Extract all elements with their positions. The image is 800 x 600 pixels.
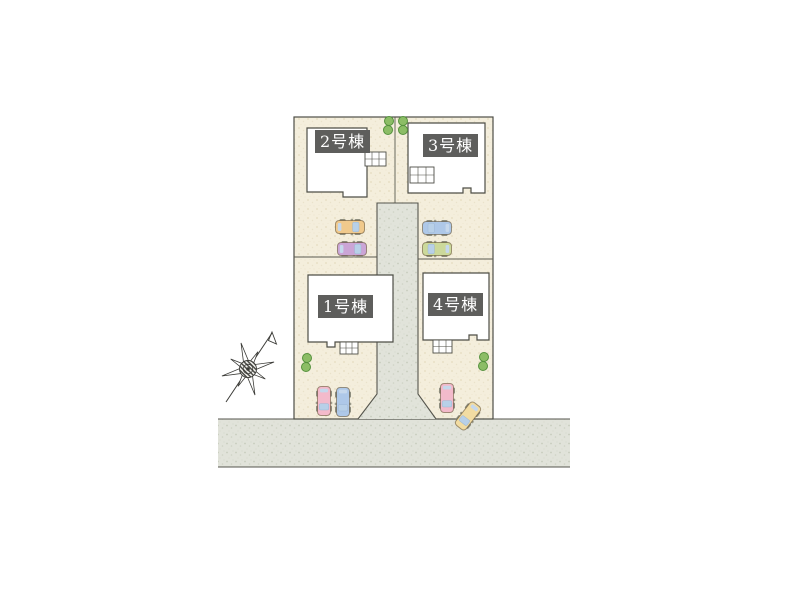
front-road: [218, 419, 570, 467]
site-plan-drawing: [0, 0, 800, 600]
car-blue-lot3: [423, 220, 452, 237]
porch-grid-building-3: [410, 167, 434, 183]
porch-grid-building-1: [340, 342, 358, 354]
label-building-1: 1号棟: [318, 295, 373, 318]
car-pink-lot4: [439, 384, 456, 413]
car-green-lot3: [423, 241, 452, 258]
car-pink-lot1: [316, 387, 333, 416]
label-building-2: 2号棟: [315, 130, 370, 153]
site-plan-canvas: 2号棟 3号棟 1号棟 4号棟: [0, 0, 800, 600]
label-building-3: 3号棟: [423, 134, 478, 157]
porch-grid-building-4: [433, 340, 452, 353]
compass-north-icon: [213, 332, 282, 404]
label-building-4: 4号棟: [428, 293, 483, 316]
car-orange-lot2: [336, 219, 365, 236]
car-blue-lot1: [335, 388, 352, 417]
porch-grid-building-2: [365, 152, 386, 166]
car-purple-lot2: [338, 241, 367, 258]
